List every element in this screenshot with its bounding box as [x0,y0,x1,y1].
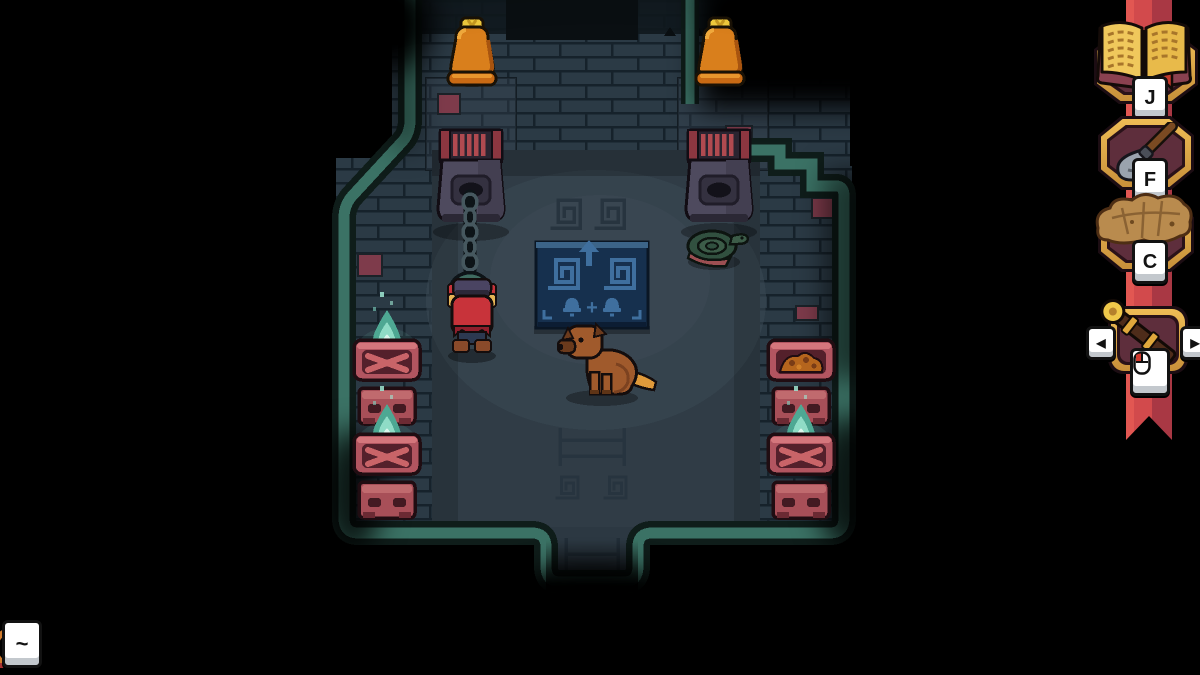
console-key-label: ~ [16,633,29,655]
prev-item-keycap: ◀ [1086,326,1116,360]
journal-key-label: J [1144,88,1155,108]
console-keycap: ~ [2,620,42,668]
shovel-key-label: F [1144,170,1156,190]
game-scene[interactable]: + [0,0,1200,675]
map-key-label: C [1143,252,1157,272]
next-item-keycap: ▶ [1180,326,1200,360]
map-keycap: C [1132,240,1168,284]
prev-arrow: ◀ [1096,337,1105,349]
journal-keycap: J [1132,76,1168,120]
vignette [0,0,1200,675]
mouse-left-click-icon [1133,351,1151,375]
game-screen: + [0,0,1200,675]
use-item-keycap [1130,348,1170,396]
next-arrow: ▶ [1190,337,1199,349]
